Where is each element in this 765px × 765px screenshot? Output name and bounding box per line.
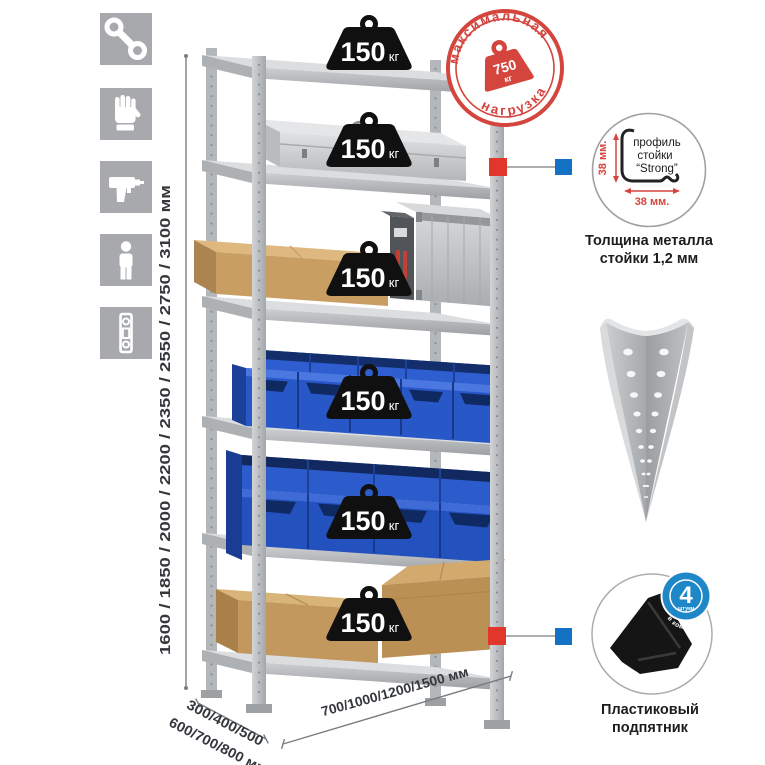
angle-post-image <box>600 319 694 522</box>
svg-text:кг: кг <box>389 620 400 635</box>
svg-text:150: 150 <box>340 37 385 67</box>
blue-marker <box>555 159 572 175</box>
weight-badge: 150 кг <box>326 115 411 168</box>
red-marker <box>489 158 507 176</box>
quantity-badge-value: 4 <box>679 582 693 609</box>
profile-caption-1: Толщина металла <box>585 233 714 249</box>
svg-text:кг: кг <box>389 518 400 533</box>
plastic-foot-detail: 4 штуки в комплекте Пластиковый подпятни… <box>592 571 712 737</box>
svg-text:стойки: стойки <box>637 150 672 162</box>
foot-callout-leader <box>488 627 572 645</box>
profile-callout-leader <box>489 158 572 176</box>
svg-text:профиль: профиль <box>633 137 681 149</box>
svg-text:150: 150 <box>340 386 385 416</box>
foot-plate <box>246 704 272 713</box>
red-marker <box>488 627 506 645</box>
profile-detail: 38 мм. 38 мм. профиль стойки “Strong” То… <box>585 114 714 268</box>
max-load-stamp: максимальная нагрузка 750 кг <box>434 0 576 139</box>
foot-caption-1: Пластиковый <box>601 702 699 718</box>
svg-text:150: 150 <box>340 263 385 293</box>
svg-text:150: 150 <box>340 608 385 638</box>
blue-marker <box>555 628 572 645</box>
svg-text:кг: кг <box>389 275 400 290</box>
svg-text:150: 150 <box>340 134 385 164</box>
height-dimension-label: 1600 / 1850 / 2000 / 2200 / 2350 / 2550 … <box>157 185 174 655</box>
weight-badge: 150 кг <box>326 18 411 71</box>
profile-dim-horizontal: 38 мм. <box>635 196 670 208</box>
profile-caption-2: стойки 1,2 мм <box>600 251 699 267</box>
quantity-badge-subtext: штуки <box>678 606 695 612</box>
foot-plate <box>201 690 222 698</box>
profile-dim-vertical: 38 мм. <box>597 141 609 176</box>
foot-caption-2: подпятник <box>612 720 689 736</box>
svg-text:кг: кг <box>389 398 400 413</box>
svg-text:“Strong”: “Strong” <box>636 163 678 175</box>
svg-text:150: 150 <box>340 506 385 536</box>
main-illustration: 1600 / 1850 / 2000 / 2200 / 2350 / 2550 … <box>0 0 765 765</box>
svg-text:кг: кг <box>389 146 400 161</box>
height-dimension: 1600 / 1850 / 2000 / 2200 / 2350 / 2550 … <box>157 54 188 690</box>
foot-plate <box>484 720 510 729</box>
svg-text:кг: кг <box>389 49 400 64</box>
shelving-product-infographic: 1600 / 1850 / 2000 / 2200 / 2350 / 2550 … <box>0 0 765 765</box>
